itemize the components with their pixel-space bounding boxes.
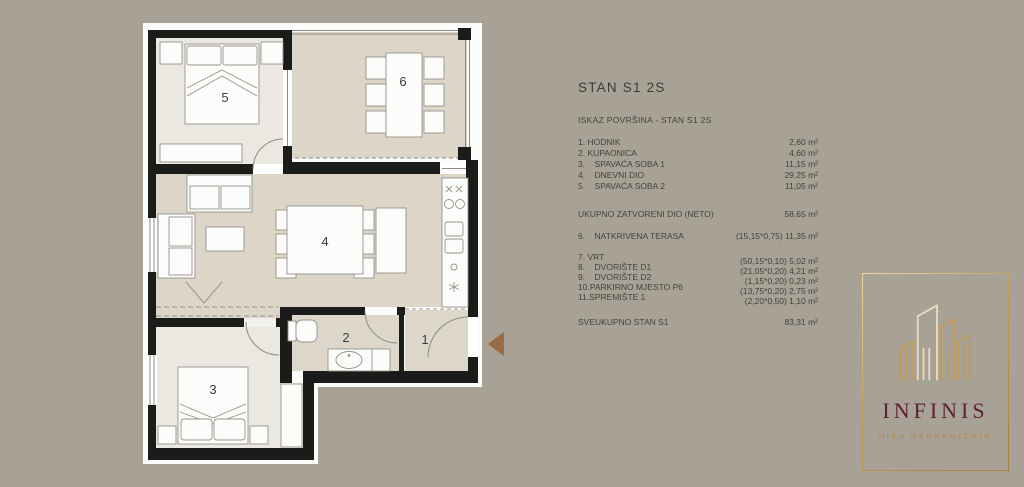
infinis-logo: INFINIS HIŠA NEPREMIČNIN: [862, 273, 1009, 471]
list-item: 1. HODNIK2,60 m²: [578, 137, 818, 148]
room-label-4: 4: [321, 234, 328, 249]
net-total-row: UKUPNO ZATVORENI DIO (NETO) 58,65 m²: [578, 209, 818, 220]
toilet: [288, 320, 317, 342]
list-item: 3. SPAVAĆA SOBA 111,15 m²: [578, 159, 818, 170]
terrace-table-chairs: [366, 53, 444, 137]
glass-slider-terrace: [442, 163, 466, 174]
window-living: [147, 218, 157, 272]
glass-door-room5-terrace: [284, 70, 292, 146]
kitchen-counter: [442, 178, 468, 307]
area-panel: STAN S1 2S ISKAZ POVRŠINA - STAN S1 2S 1…: [578, 80, 818, 328]
outdoor-area-list: 7. VRT(50,15*0,10) 5,02 m² 8. DVORIŠTE D…: [578, 252, 818, 302]
room-label-6: 6: [399, 74, 406, 89]
page-title: STAN S1 2S: [578, 80, 818, 95]
window-room3: [147, 355, 157, 405]
room-area-list: 1. HODNIK2,60 m² 2. KUPAONICA4,60 m² 3. …: [578, 137, 818, 192]
sink-counter: [328, 349, 390, 371]
wardrobe-room3: [281, 384, 302, 447]
page: 5 6 4 2 1 3 STAN S1 2S ISKAZ POVRŠINA - …: [0, 0, 1024, 487]
room-label-2: 2: [342, 330, 349, 345]
kitchen-island: [376, 208, 406, 273]
door-opening-room3: [244, 318, 276, 327]
panel-subtitle: ISKAZ POVRŠINA - STAN S1 2S: [578, 115, 818, 125]
room-label-3: 3: [209, 382, 216, 397]
list-item: 2. KUPAONICA4,60 m²: [578, 148, 818, 159]
building-icon: [888, 296, 984, 388]
floor-plan-drawing: 5 6 4 2 1 3: [140, 20, 512, 472]
grand-total-row: SVEUKUPNO STAN S1 83,31 m²: [578, 317, 818, 328]
list-item: 7. VRT(50,15*0,10) 5,02 m²: [578, 252, 818, 262]
door-opening-entrance: [468, 317, 478, 357]
brand-name: INFINIS: [882, 398, 988, 424]
list-item: 4. DNEVNI DIO29,25 m²: [578, 170, 818, 181]
room-label-1: 1: [421, 332, 428, 347]
room-label-5: 5: [221, 90, 228, 105]
terrace-row: 6. NATKRIVENA TERASA (15,15*0,75) 11,35 …: [578, 231, 818, 242]
brand-tagline: HIŠA NEPREMIČNIN: [879, 432, 992, 441]
door-opening-room5: [253, 164, 283, 174]
list-item: 5. SPAVAĆA SOBA 211,05 m²: [578, 181, 818, 192]
entrance-arrow-icon: [488, 332, 504, 356]
